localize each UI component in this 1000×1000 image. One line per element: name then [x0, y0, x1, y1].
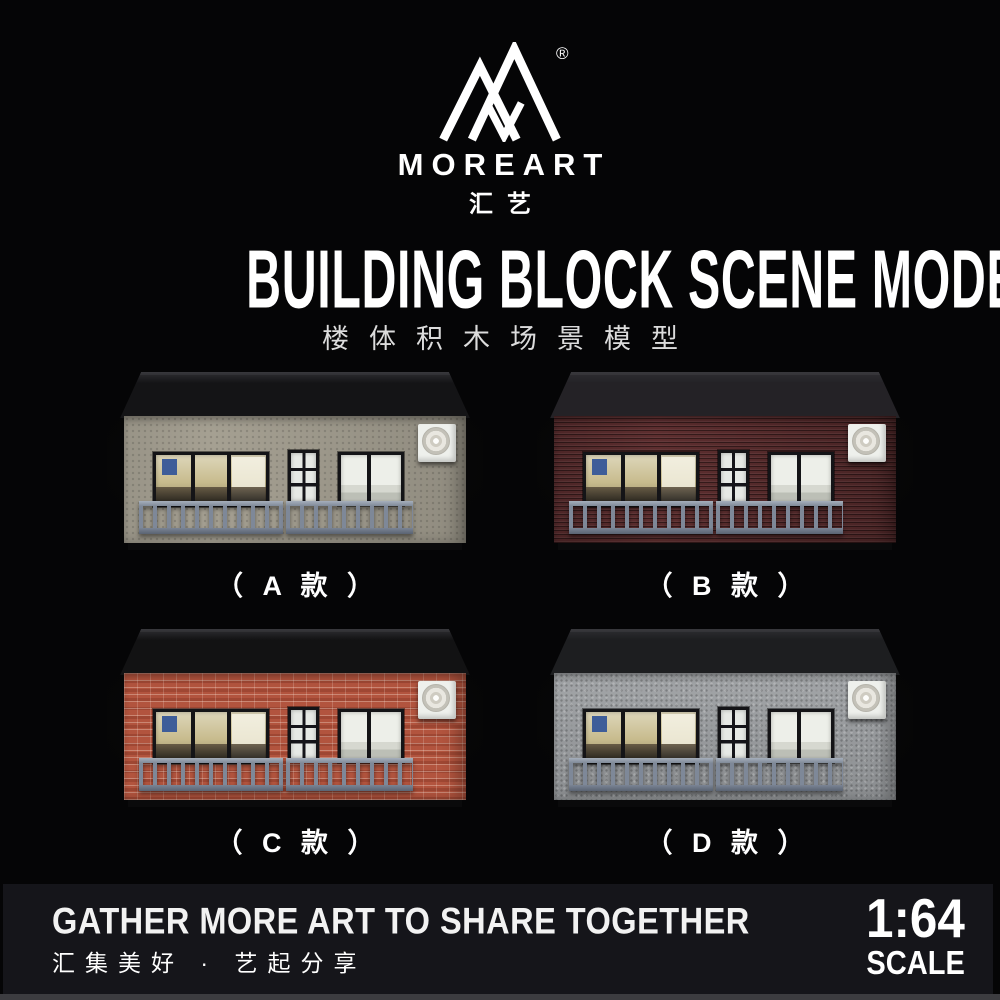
product-card-c: （ C 款 ）	[107, 629, 483, 860]
building-roof	[550, 372, 900, 418]
window-interior-blue-board	[162, 459, 177, 475]
air-conditioner-unit	[848, 681, 886, 719]
product-card-b: （ B 款 ）	[537, 372, 913, 603]
fan-icon	[422, 427, 450, 455]
poster-root: { "brand": { "name": "MOREART", "name_cn…	[0, 0, 1000, 1000]
window-mullion	[191, 712, 195, 762]
product-card-d: （ D 款 ）	[537, 629, 913, 860]
poster-title: BUILDING BLOCK SCENE MODEL	[0, 231, 1000, 322]
window-mullion	[227, 712, 231, 762]
footer-slogan-en-text: GATHER MORE ART TO SHARE TOGETHER	[52, 901, 750, 943]
product-label: （ A 款 ）	[107, 564, 483, 603]
building-roof	[120, 372, 470, 418]
window-mullion	[797, 455, 801, 504]
poster-subtitle-chinese: 楼体积木场景模型	[0, 317, 1000, 356]
product-label: （ D 款 ）	[537, 821, 913, 860]
large-window	[583, 452, 699, 508]
scale-box: 1:64 SCALE	[853, 892, 965, 979]
building-wall	[124, 673, 466, 800]
building-wall	[554, 416, 896, 543]
building-roof	[550, 629, 900, 675]
window-mullion	[227, 455, 231, 505]
right-window	[768, 709, 835, 764]
small-paned-window	[288, 450, 319, 503]
scale-ratio: 1:64	[859, 892, 965, 947]
window-mullion	[657, 712, 661, 762]
window-interior-blue-board	[592, 459, 607, 475]
window-mullion	[621, 455, 625, 505]
product-photo	[107, 629, 483, 807]
bottom-strip	[0, 994, 1000, 1000]
window-railing-right	[716, 501, 843, 534]
air-conditioner-unit	[848, 424, 886, 462]
moreart-logo-icon	[434, 42, 566, 142]
brand-name: MOREART	[0, 147, 1000, 183]
air-conditioner-unit	[418, 424, 456, 462]
footer-bar: GATHER MORE ART TO SHARE TOGETHER 汇集美好 ·…	[3, 884, 993, 994]
building-roof	[120, 629, 470, 675]
window-mullion	[621, 712, 625, 762]
window-railing-right	[716, 758, 843, 791]
window-mullion	[367, 455, 371, 504]
building-base	[128, 543, 463, 550]
building-wall	[124, 416, 466, 543]
window-railing-left	[139, 758, 283, 791]
product-photo	[537, 372, 913, 550]
window-railing-left	[569, 758, 713, 791]
building-base	[558, 543, 893, 550]
window-railing-left	[139, 501, 283, 534]
building-base	[558, 800, 893, 807]
scale-label: SCALE	[867, 946, 965, 979]
brand-name-chinese: 汇艺	[0, 184, 1000, 219]
large-window	[153, 709, 269, 765]
window-railing-left	[569, 501, 713, 534]
footer-slogan-en: GATHER MORE ART TO SHARE TOGETHER	[52, 901, 802, 941]
fan-icon	[422, 684, 450, 712]
air-conditioner-unit	[418, 681, 456, 719]
product-label: （ C 款 ）	[107, 821, 483, 860]
right-window	[338, 709, 405, 764]
fan-icon	[852, 427, 880, 455]
window-interior-blue-board	[592, 716, 607, 732]
product-card-a: （ A 款 ）	[107, 372, 483, 603]
small-paned-window	[288, 707, 319, 760]
footer-slogan-chinese: 汇集美好 · 艺起分享	[52, 944, 366, 978]
window-mullion	[367, 712, 371, 761]
large-window	[153, 452, 269, 508]
poster-title-text: BUILDING BLOCK SCENE MODEL	[246, 231, 1000, 327]
window-mullion	[657, 455, 661, 505]
building-wall	[554, 673, 896, 800]
right-window	[768, 452, 835, 507]
window-mullion	[191, 455, 195, 505]
small-paned-window	[718, 707, 749, 760]
large-window	[583, 709, 699, 765]
product-label: （ B 款 ）	[537, 564, 913, 603]
product-grid: （ A 款 ）	[107, 372, 913, 860]
window-railing-right	[286, 501, 413, 534]
window-interior-blue-board	[162, 716, 177, 732]
window-railing-right	[286, 758, 413, 791]
product-photo	[107, 372, 483, 550]
small-paned-window	[718, 450, 749, 503]
window-mullion	[797, 712, 801, 761]
building-base	[128, 800, 463, 807]
fan-icon	[852, 684, 880, 712]
registered-mark: ®	[556, 44, 569, 64]
product-photo	[537, 629, 913, 807]
right-window	[338, 452, 405, 507]
